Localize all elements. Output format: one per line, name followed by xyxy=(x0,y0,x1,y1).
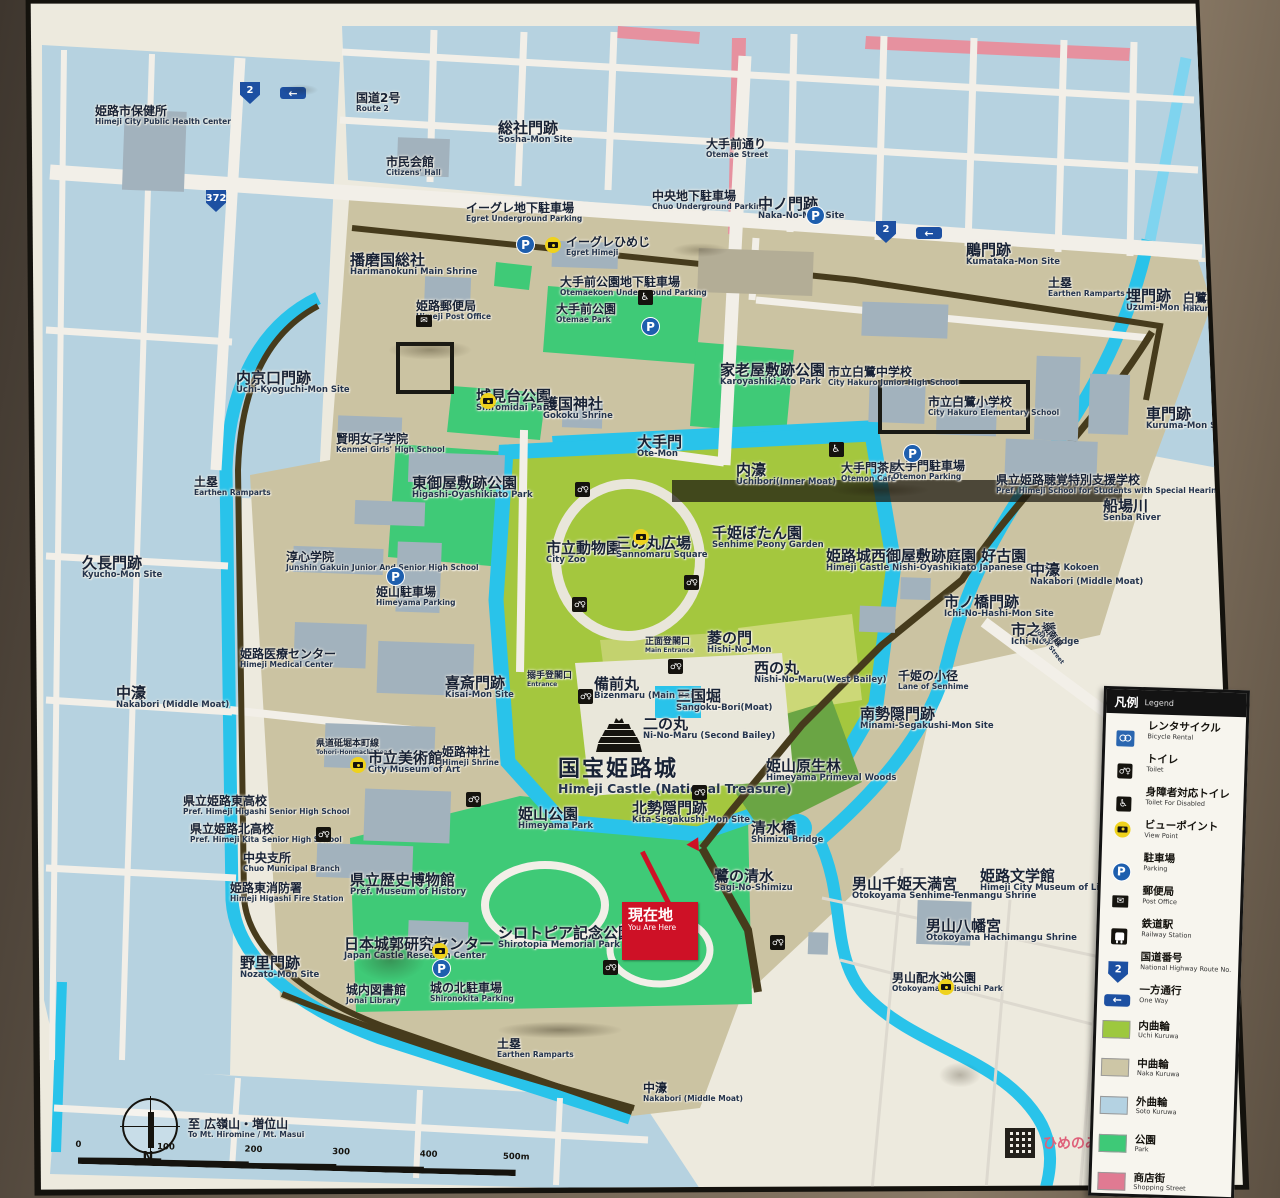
legend-color-swatch xyxy=(1097,1172,1126,1191)
scale-tick: 300 xyxy=(332,1147,350,1157)
you-are-here-en: You Are Here xyxy=(628,924,692,933)
legend-row-train: 鉄道駅Railway Station xyxy=(1099,911,1240,948)
legend-area-row: 中曲輪Naka Kuruwa xyxy=(1094,1048,1235,1090)
legend-row-camera: ビューポイントView Point xyxy=(1102,812,1243,849)
legend-area-row: 公園Park xyxy=(1092,1124,1233,1166)
legend-color-swatch xyxy=(1101,1058,1130,1077)
bicycle-icon xyxy=(1116,730,1134,747)
qr-code-icon xyxy=(1005,1128,1035,1158)
legend-row-toilet: ♂♀トイレToilet xyxy=(1104,746,1245,783)
map-board: 姫路市保健所Himeji City Public Health Center国道… xyxy=(0,0,1280,1198)
scale-tick: 0 xyxy=(75,1140,81,1150)
camera-icon xyxy=(1114,821,1130,837)
legend-row-wheelchair: ♿身障者対応トイレToilet For Disabled xyxy=(1103,779,1244,816)
legend-row-parking: P駐車場Parking xyxy=(1101,845,1242,882)
post-icon: ✉ xyxy=(1112,895,1128,907)
legend-color-swatch xyxy=(1100,1096,1129,1115)
scale-tick: 200 xyxy=(244,1145,262,1155)
legend-color-swatch xyxy=(1098,1134,1127,1153)
map-geometry xyxy=(0,0,1280,1198)
you-are-here-jp: 現在地 xyxy=(628,907,692,924)
legend-title-jp: 凡例 xyxy=(1114,693,1139,711)
train-icon xyxy=(1111,928,1127,944)
legend-area-row: 外曲輪Soto Kuruwa xyxy=(1093,1086,1234,1128)
you-are-here-marker: 現在地 You Are Here xyxy=(622,902,698,960)
legend-area-row: 商店街Shopping Street xyxy=(1091,1162,1232,1198)
legend-title-en: Legend xyxy=(1144,698,1174,708)
legend-row-post: ✉郵便局Post Office xyxy=(1100,878,1241,915)
toilet-icon: ♂♀ xyxy=(1117,763,1132,778)
legend-area-row: 内曲輪Uchi Kuruwa xyxy=(1096,1010,1237,1052)
scale-tick: 500m xyxy=(503,1152,530,1163)
scale-tick: 100 xyxy=(157,1142,175,1152)
wheelchair-icon: ♿ xyxy=(1116,796,1131,811)
legend-color-swatch xyxy=(1102,1020,1131,1039)
legend-row-bicycle: レンタサイクルBicycle Rental xyxy=(1105,713,1246,750)
scale-tick: 400 xyxy=(420,1149,438,1159)
legend-panel: 凡例 Legend レンタサイクルBicycle Rental♂♀トイレToil… xyxy=(1088,686,1250,1198)
photo-background: 姫路市保健所Himeji City Public Health Center国道… xyxy=(0,0,1280,1198)
oneway-icon: ← xyxy=(1104,993,1130,1006)
legend-row-shield: 2国道番号National Highway Route No. xyxy=(1098,944,1239,981)
parking-icon: P xyxy=(1111,862,1131,882)
